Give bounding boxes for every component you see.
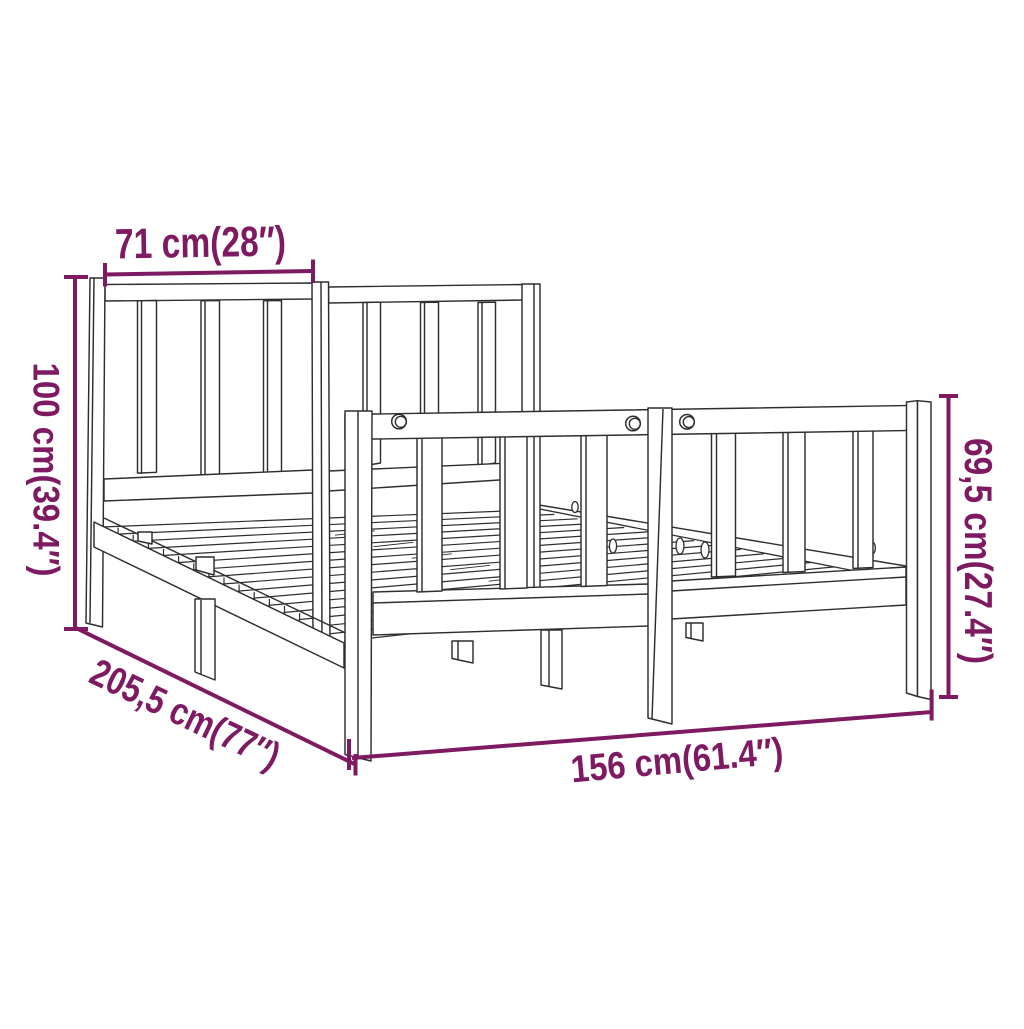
svg-text:100 cm(39.4″): 100 cm(39.4″) — [26, 363, 67, 577]
svg-text:69,5 cm(27.4″): 69,5 cm(27.4″) — [956, 438, 999, 664]
svg-text:71 cm(28″): 71 cm(28″) — [115, 219, 287, 269]
